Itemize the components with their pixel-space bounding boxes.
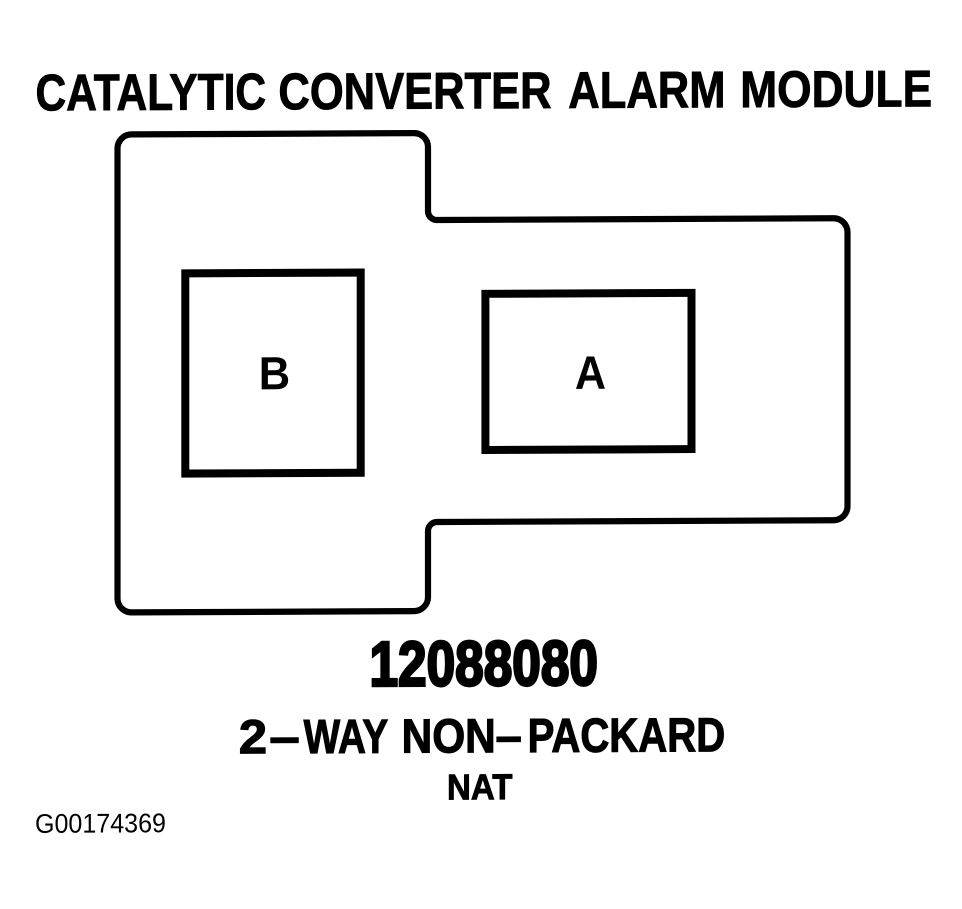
svg-text:2: 2: [239, 711, 267, 764]
svg-text:B: B: [259, 347, 290, 399]
svg-text:PACKARD: PACKARD: [528, 709, 726, 763]
svg-text:–: –: [496, 710, 522, 763]
svg-text:CATALYTIC: CATALYTIC: [36, 62, 267, 121]
svg-text:NON: NON: [402, 710, 496, 763]
svg-text:ALARM: ALARM: [568, 60, 725, 119]
svg-text:G00174369: G00174369: [35, 808, 166, 839]
svg-text:NAT: NAT: [447, 766, 513, 807]
svg-text:WAY: WAY: [304, 711, 389, 764]
svg-text:12088080: 12088080: [370, 629, 599, 700]
svg-text:–: –: [269, 711, 300, 764]
svg-text:CONVERTER: CONVERTER: [278, 61, 551, 120]
svg-text:MODULE: MODULE: [740, 59, 932, 118]
svg-text:A: A: [575, 346, 606, 399]
